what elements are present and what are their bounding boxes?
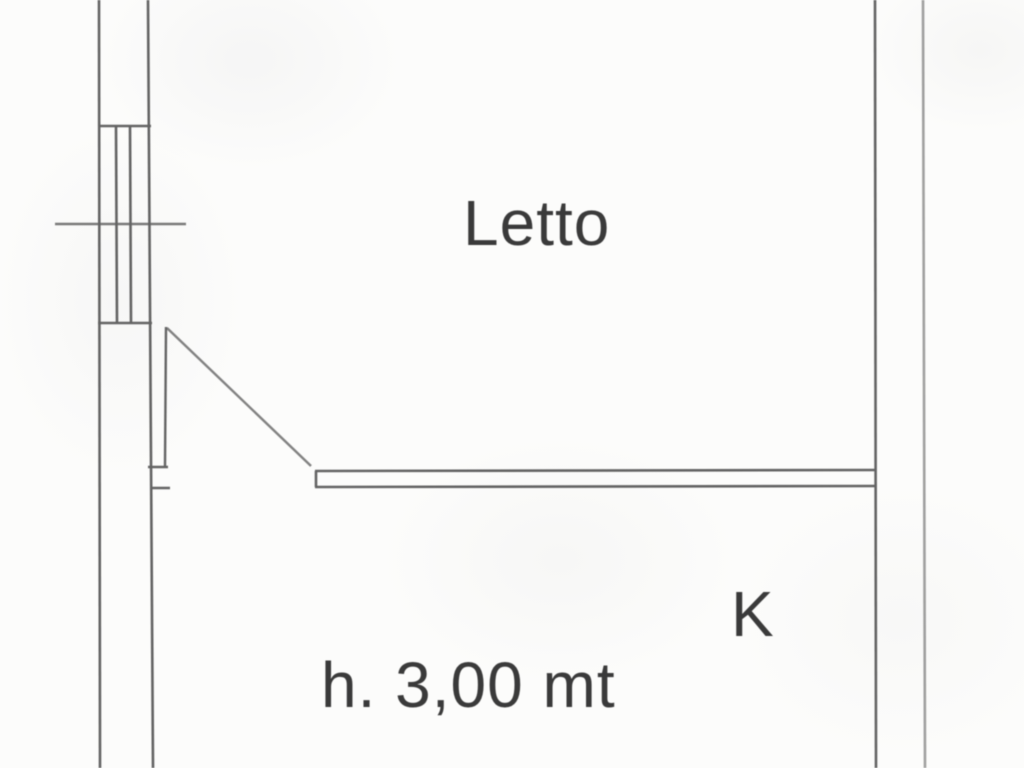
room-label-bedroom: Letto <box>463 191 610 255</box>
room-label-kitchen: K <box>731 582 775 646</box>
floorplan-drawing: Letto K h. 3,00 mt <box>0 0 1024 768</box>
right-wall <box>875 0 925 768</box>
door-swing-icon <box>148 327 311 488</box>
window-icon <box>55 126 186 323</box>
floorplan-page: Letto K h. 3,00 mt <box>0 0 1024 768</box>
height-annotation: h. 3,00 mt <box>321 653 616 717</box>
partition-wall <box>315 470 875 487</box>
left-wall <box>99 0 153 768</box>
